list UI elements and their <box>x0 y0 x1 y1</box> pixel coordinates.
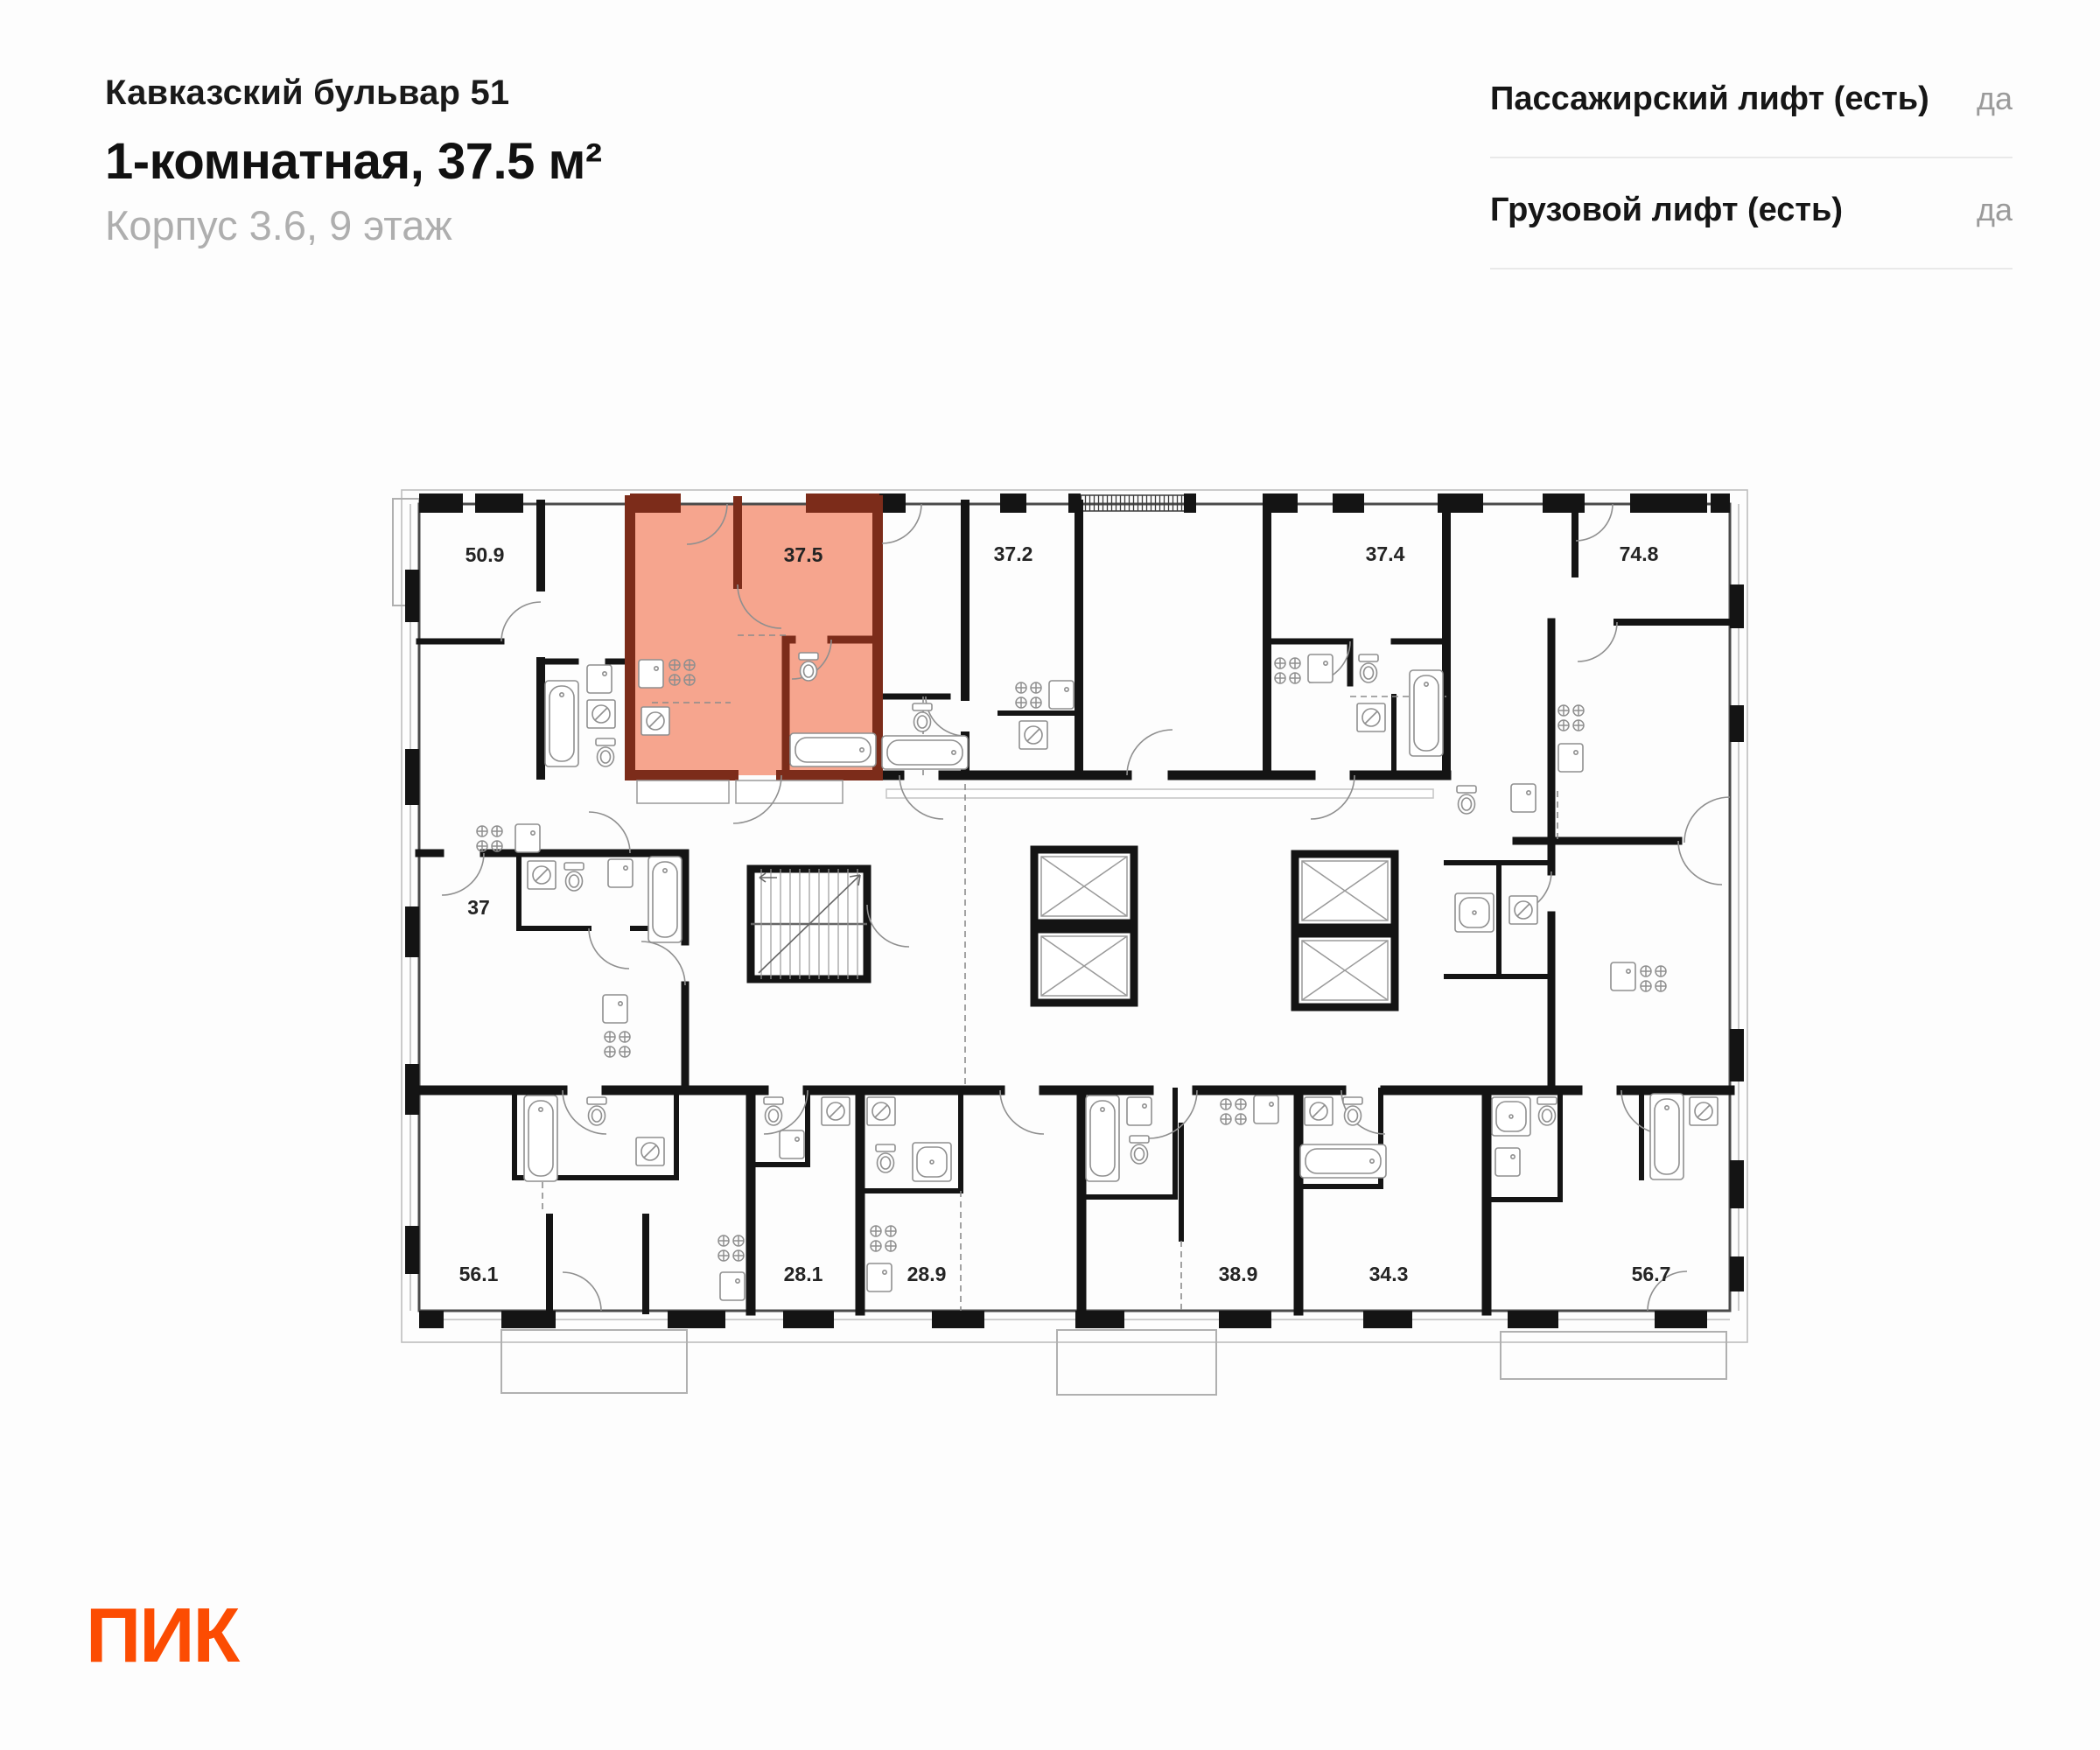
unit-area-label: 28.1 <box>784 1263 823 1285</box>
unit-area-label: 38.9 <box>1219 1263 1258 1285</box>
unit-area-label: 37 <box>467 896 490 919</box>
floor-plan-svg: 50.9 37.5 37.2 37.4 74.8 37 56.1 28.1 28… <box>388 486 1761 1401</box>
feature-row-passenger-lift: Пассажирский лифт (есть) да <box>1490 80 2012 158</box>
stairs <box>751 869 867 979</box>
unit-area-label: 34.3 <box>1369 1263 1409 1285</box>
elevator-shaft <box>1034 850 1395 1007</box>
corridor-niches <box>637 780 1433 803</box>
project-title: Кавказский бульвар 51 <box>105 73 602 113</box>
feature-label: Грузовой лифт (есть) <box>1490 192 1843 229</box>
feature-row-cargo-lift: Грузовой лифт (есть) да <box>1490 158 2012 269</box>
apartment-title: 1-комнатная, 37.5 м² <box>105 132 602 191</box>
floor-plan-page: Кавказский бульвар 51 1-комнатная, 37.5 … <box>0 0 2100 1750</box>
pik-logo: ПИК <box>86 1591 238 1680</box>
feature-label: Пассажирский лифт (есть) <box>1490 80 1929 118</box>
unit-area-label: 28.9 <box>907 1263 947 1285</box>
unit-area-label: 56.7 <box>1632 1263 1671 1285</box>
floor-plan: 50.9 37.5 37.2 37.4 74.8 37 56.1 28.1 28… <box>388 486 1761 1401</box>
building-floor-subtitle: Корпус 3.6, 9 этаж <box>105 201 602 249</box>
unit-area-label: 56.1 <box>459 1263 499 1285</box>
features-panel: Пассажирский лифт (есть) да Грузовой лиф… <box>1490 80 2012 269</box>
elevators <box>1034 850 1395 1007</box>
header: Кавказский бульвар 51 1-комнатная, 37.5 … <box>105 73 602 249</box>
unit-area-label: 74.8 <box>1620 542 1659 565</box>
unit-area-label: 50.9 <box>465 543 505 566</box>
unit-area-label: 37.4 <box>1366 542 1405 565</box>
feature-value: да <box>1977 80 2012 117</box>
feature-value: да <box>1977 192 2012 228</box>
hatch-strip <box>1079 495 1186 511</box>
unit-area-label-highlighted: 37.5 <box>784 543 823 566</box>
unit-area-label: 37.2 <box>994 542 1033 565</box>
